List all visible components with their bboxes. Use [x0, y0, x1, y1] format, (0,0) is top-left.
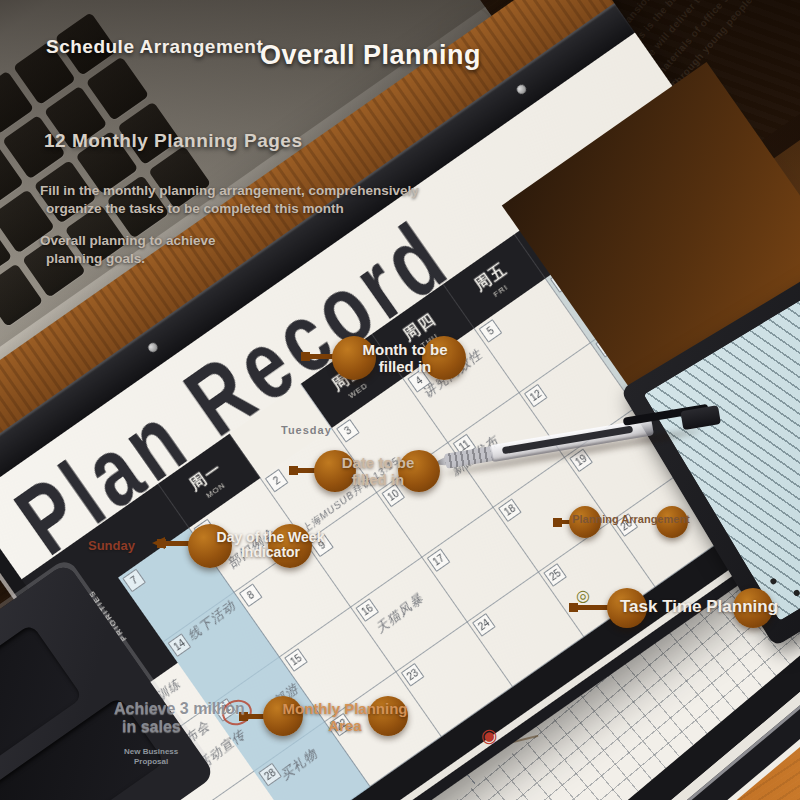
- callout-month: Month to be filled in: [300, 336, 490, 386]
- callout-monthly: Monthly Planning Area: [238, 696, 418, 746]
- callout-task: Task Time Planning: [568, 588, 798, 632]
- date-box: 12: [524, 384, 548, 408]
- date-box: 18: [498, 498, 522, 522]
- target-mark-icon: ◉: [481, 724, 498, 747]
- feature-paragraph-1: Fill in the monthly planning arrangement…: [40, 182, 419, 217]
- new-business-proposal-note: New Business Proposal: [124, 747, 178, 766]
- header-title-main: Overall Planning: [260, 40, 481, 71]
- date-box: 28: [258, 763, 282, 787]
- date-box: 15: [284, 648, 308, 672]
- date-box: 8: [239, 583, 263, 607]
- date-box: 25: [543, 563, 567, 587]
- date-box: 24: [472, 613, 496, 637]
- achieve-sales-note: Achieve 3 million in sales: [114, 700, 245, 737]
- callout-weekday: Sunday Day of the Week Indicator: [88, 524, 368, 574]
- bullet-dot: [769, 577, 777, 585]
- tuesday-label: Tuesday: [281, 424, 332, 436]
- date-box: 2: [265, 469, 289, 493]
- date-box: 23: [401, 663, 425, 687]
- rail-screw: [147, 341, 160, 354]
- feature-paragraph-2: Overall planning to achieve planning goa…: [40, 232, 216, 267]
- date-box: 17: [427, 548, 451, 572]
- date-box: 16: [355, 598, 379, 622]
- callout-planning: Planning Arrangement: [552, 505, 712, 545]
- callout-date: Date to be filled in: [288, 448, 468, 498]
- sunday-label: Sunday: [88, 538, 135, 553]
- header-subtitle: 12 Monthly Planning Pages: [44, 130, 303, 152]
- header-title-left: Schedule Arrangement: [46, 36, 263, 58]
- date-box: 3: [336, 419, 360, 443]
- product-photo-stage: Expansion of color to explode. This is t…: [0, 0, 800, 800]
- rail-screw: [515, 83, 528, 96]
